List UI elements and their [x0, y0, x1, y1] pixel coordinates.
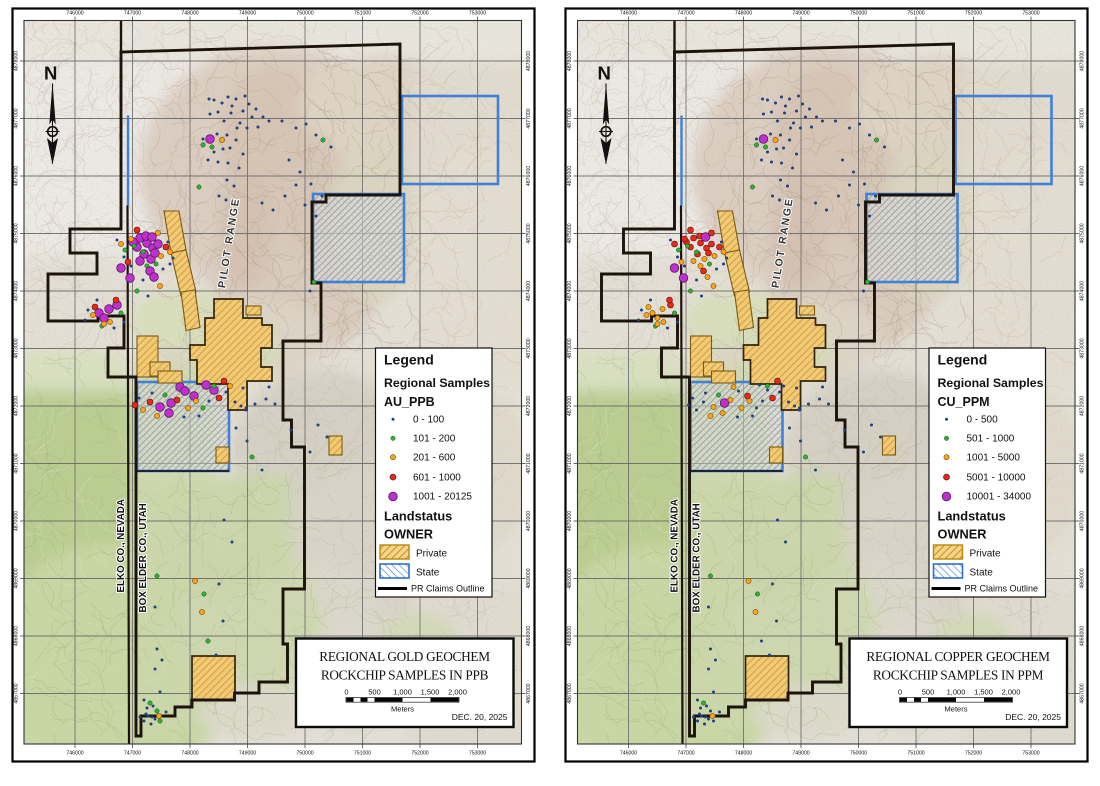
svg-text:0 - 500: 0 - 500: [967, 415, 999, 426]
svg-text:1001 - 20125: 1001 - 20125: [413, 492, 472, 503]
svg-text:State: State: [970, 568, 994, 579]
svg-text:State: State: [416, 568, 440, 579]
svg-text:Private: Private: [970, 549, 1002, 560]
svg-text:Meters: Meters: [945, 705, 968, 714]
svg-text:OWNER: OWNER: [938, 527, 987, 542]
svg-text:0: 0: [898, 688, 902, 697]
svg-text:Meters: Meters: [391, 705, 414, 714]
svg-text:OWNER: OWNER: [384, 527, 433, 542]
svg-text:DEC. 20, 2025: DEC. 20, 2025: [1005, 712, 1061, 722]
svg-text:601 - 1000: 601 - 1000: [413, 472, 461, 483]
svg-text:REGIONAL COPPER GEOCHEM: REGIONAL COPPER GEOCHEM: [866, 649, 1050, 664]
svg-text:501 - 1000: 501 - 1000: [967, 434, 1015, 445]
svg-text:2,000: 2,000: [448, 688, 467, 697]
svg-text:101 - 200: 101 - 200: [413, 434, 456, 445]
svg-text:1,500: 1,500: [974, 688, 993, 697]
svg-text:0 - 100: 0 - 100: [413, 415, 445, 426]
svg-text:AU_PPB: AU_PPB: [384, 395, 435, 409]
svg-text:0: 0: [344, 688, 348, 697]
svg-text:1,500: 1,500: [421, 688, 440, 697]
svg-text:500: 500: [922, 688, 935, 697]
svg-text:DEC. 20, 2025: DEC. 20, 2025: [452, 712, 508, 722]
svg-text:1,000: 1,000: [393, 688, 412, 697]
svg-text:201 - 600: 201 - 600: [413, 452, 456, 463]
svg-text:Regional Samples: Regional Samples: [384, 376, 490, 390]
svg-text:Private: Private: [416, 549, 448, 560]
svg-text:Legend: Legend: [384, 352, 434, 368]
svg-text:Regional Samples: Regional Samples: [938, 376, 1044, 390]
svg-text:PR Claims Outline: PR Claims Outline: [411, 584, 485, 594]
svg-text:5001 - 10000: 5001 - 10000: [967, 472, 1026, 483]
svg-text:2,000: 2,000: [1002, 688, 1021, 697]
svg-text:REGIONAL GOLD GEOCHEM: REGIONAL GOLD GEOCHEM: [319, 649, 490, 664]
svg-text:Legend: Legend: [938, 352, 988, 368]
svg-text:Landstatus: Landstatus: [938, 509, 1006, 524]
svg-text:1,000: 1,000: [947, 688, 966, 697]
svg-text:10001 - 34000: 10001 - 34000: [967, 492, 1032, 503]
svg-text:1001 - 5000: 1001 - 5000: [967, 452, 1021, 463]
svg-text:Landstatus: Landstatus: [384, 509, 452, 524]
svg-text:ROCKCHIP SAMPLES IN PPM: ROCKCHIP SAMPLES IN PPM: [873, 668, 1044, 683]
svg-text:CU_PPM: CU_PPM: [938, 395, 990, 409]
svg-text:500: 500: [368, 688, 381, 697]
svg-text:ROCKCHIP SAMPLES IN PPB: ROCKCHIP SAMPLES IN PPB: [321, 668, 489, 683]
svg-text:PR Claims Outline: PR Claims Outline: [965, 584, 1039, 594]
